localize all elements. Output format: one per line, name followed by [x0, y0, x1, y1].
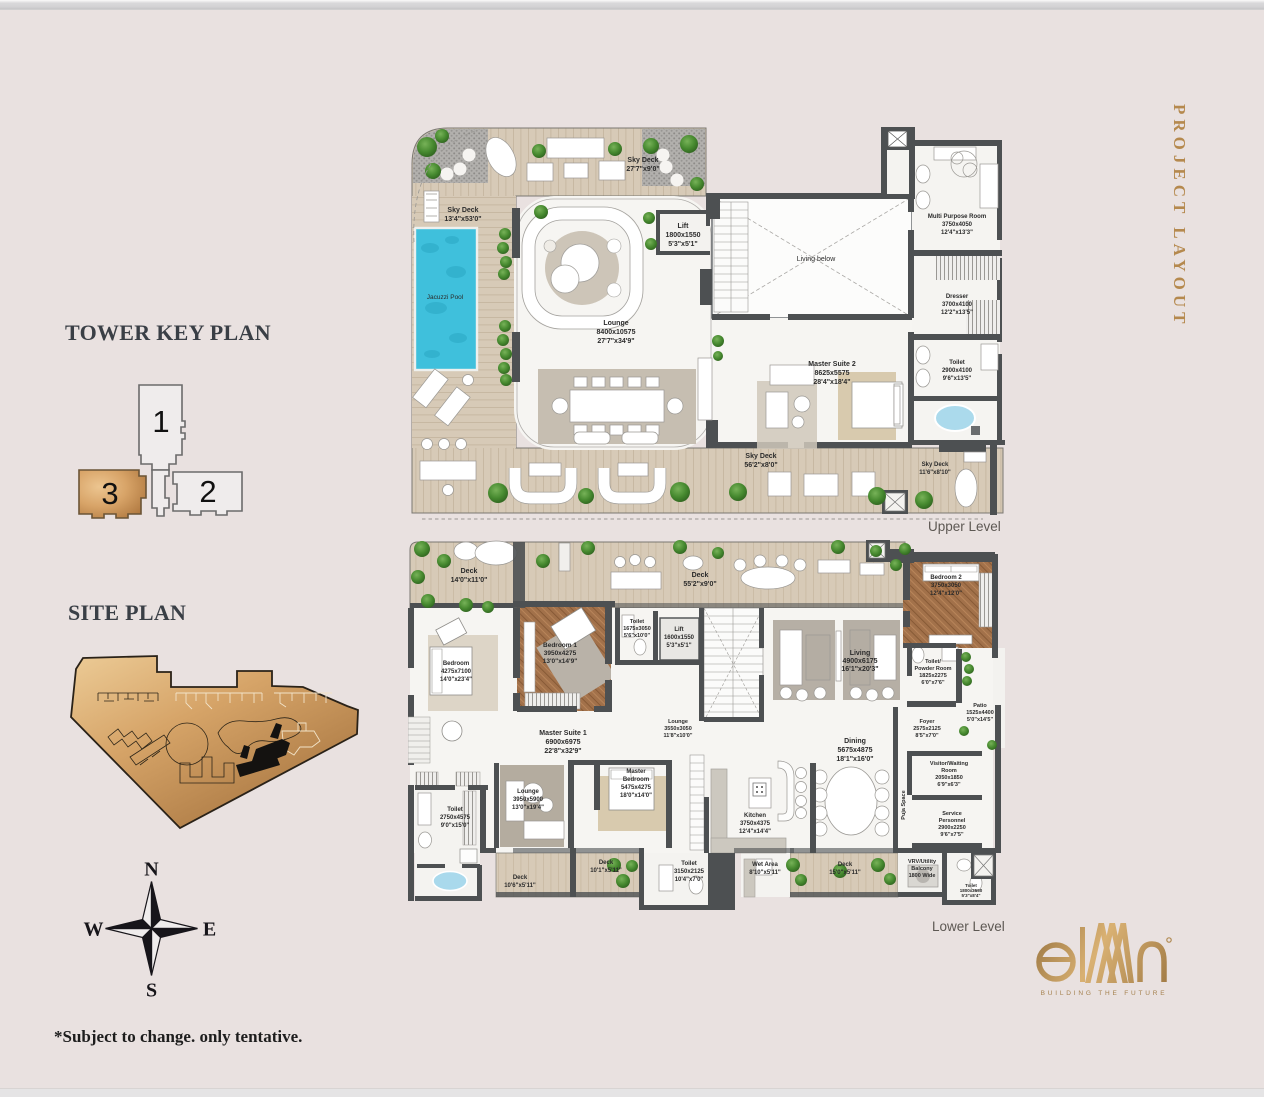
svg-text:2: 2	[199, 474, 216, 509]
svg-text:6'9"x6'3": 6'9"x6'3"	[937, 782, 961, 788]
svg-text:2900x2250: 2900x2250	[938, 825, 966, 831]
svg-text:12'4"x12'0": 12'4"x12'0"	[930, 591, 962, 597]
svg-text:Lounge: Lounge	[517, 789, 539, 795]
svg-text:3750x4375: 3750x4375	[740, 821, 771, 827]
svg-text:Balcony: Balcony	[911, 866, 933, 872]
svg-text:Toilet: Toilet	[949, 360, 965, 366]
svg-text:Patio: Patio	[973, 703, 987, 709]
svg-text:8'10"x5'11": 8'10"x5'11"	[749, 870, 781, 876]
svg-text:Kitchen: Kitchen	[744, 813, 766, 819]
svg-text:12'4"x13'3": 12'4"x13'3"	[941, 230, 973, 236]
svg-text:5'3"x8'4": 5'3"x8'4"	[962, 893, 981, 898]
svg-text:1800 Wide: 1800 Wide	[909, 873, 936, 879]
svg-text:5'3"x5'1": 5'3"x5'1"	[666, 643, 691, 649]
svg-text:Deck: Deck	[461, 568, 478, 575]
svg-text:27'7"x34'9": 27'7"x34'9"	[597, 338, 634, 345]
svg-text:2050x1850: 2050x1850	[935, 775, 963, 781]
svg-text:Sky Deck: Sky Deck	[922, 462, 949, 468]
svg-text:2750x4575: 2750x4575	[440, 815, 471, 821]
svg-text:12'4"x14'4": 12'4"x14'4"	[739, 829, 771, 835]
svg-text:13'0"x14'9": 13'0"x14'9"	[543, 658, 578, 665]
svg-text:3750x4050: 3750x4050	[942, 222, 973, 228]
svg-text:Wet Area: Wet Area	[752, 862, 778, 868]
svg-text:Lounge: Lounge	[603, 320, 628, 327]
svg-text:8400x10575: 8400x10575	[597, 329, 636, 336]
svg-text:Master Suite 1: Master Suite 1	[539, 730, 587, 737]
svg-text:11'8"x10'0": 11'8"x10'0"	[664, 733, 693, 739]
svg-text:15'0"x5'11": 15'0"x5'11"	[829, 870, 861, 876]
svg-text:5'0"x14'5": 5'0"x14'5"	[967, 717, 994, 723]
svg-text:10'4"x7'0": 10'4"x7'0"	[675, 877, 704, 883]
svg-text:6'0"x7'6": 6'0"x7'6"	[921, 680, 945, 686]
svg-text:Bedroom: Bedroom	[623, 777, 649, 783]
svg-text:13'0"x19'4": 13'0"x19'4"	[512, 805, 544, 811]
svg-text:8625x5575: 8625x5575	[814, 370, 849, 377]
svg-text:Foyer: Foyer	[920, 719, 936, 725]
svg-text:10'1"x5'11": 10'1"x5'11"	[590, 868, 622, 874]
svg-text:14'0"x11'0": 14'0"x11'0"	[451, 577, 488, 584]
svg-text:Room: Room	[941, 768, 957, 774]
svg-text:Bedroom 2: Bedroom 2	[930, 575, 962, 581]
svg-text:Deck: Deck	[599, 860, 614, 866]
svg-text:18'1"x16'0": 18'1"x16'0"	[836, 756, 873, 763]
svg-text:9'6"x7'5": 9'6"x7'5"	[940, 832, 964, 838]
svg-text:Sky Deck: Sky Deck	[745, 453, 776, 460]
svg-text:Service: Service	[942, 811, 962, 817]
svg-text:9'0"x15'0": 9'0"x15'0"	[441, 823, 470, 829]
svg-text:Living below: Living below	[797, 256, 836, 263]
svg-text:1675x3050: 1675x3050	[623, 626, 651, 632]
svg-text:Deck: Deck	[838, 862, 853, 868]
svg-text:Bedroom: Bedroom	[443, 661, 469, 667]
svg-text:BUILDING THE FUTURE: BUILDING THE FUTURE	[1041, 990, 1168, 997]
svg-text:3700x4100: 3700x4100	[942, 302, 973, 308]
svg-text:18'0"x14'0": 18'0"x14'0"	[620, 793, 652, 799]
svg-text:14'0"x23'4": 14'0"x23'4"	[440, 677, 472, 683]
svg-text:Sky Deck: Sky Deck	[627, 157, 658, 164]
svg-text:Powder Room: Powder Room	[915, 666, 952, 672]
svg-text:3950x5900: 3950x5900	[513, 797, 544, 803]
svg-text:3550x3050: 3550x3050	[664, 726, 692, 732]
svg-text:3: 3	[101, 476, 118, 511]
svg-text:3150x2125: 3150x2125	[674, 869, 705, 875]
svg-text:1: 1	[152, 404, 169, 439]
svg-text:16'1"x20'3": 16'1"x20'3"	[841, 666, 878, 673]
svg-text:13'4"x53'0": 13'4"x53'0"	[444, 216, 481, 223]
svg-text:10'6"x5'11": 10'6"x5'11"	[504, 883, 536, 889]
svg-text:22'8"x32'9": 22'8"x32'9"	[544, 748, 581, 755]
svg-text:Visitor/Waiting: Visitor/Waiting	[930, 761, 968, 767]
svg-text:Sky Deck: Sky Deck	[447, 207, 478, 214]
svg-text:Multi Purpose Room: Multi Purpose Room	[928, 214, 986, 220]
svg-text:W: W	[84, 919, 104, 941]
svg-text:Jacuzzi Pool: Jacuzzi Pool	[427, 294, 464, 301]
svg-text:3950x4275: 3950x4275	[544, 650, 577, 657]
svg-text:11'6"x8'10": 11'6"x8'10"	[919, 470, 951, 476]
svg-text:Dining: Dining	[844, 738, 866, 745]
svg-text:Bedroom 1: Bedroom 1	[543, 642, 577, 649]
svg-text:Puja Space: Puja Space	[901, 790, 907, 819]
svg-text:55'2"x9'0": 55'2"x9'0"	[683, 581, 716, 588]
svg-text:S: S	[146, 980, 157, 1001]
svg-text:2900x4100: 2900x4100	[942, 368, 973, 374]
svg-text:5'6"x10'0": 5'6"x10'0"	[624, 633, 651, 639]
svg-text:28'4"x18'4": 28'4"x18'4"	[813, 379, 850, 386]
svg-text:27'7"x9'0": 27'7"x9'0"	[626, 166, 659, 173]
svg-text:VRV/Utility: VRV/Utility	[908, 859, 937, 865]
svg-text:Lift: Lift	[674, 627, 683, 633]
svg-text:8'5"x7'0": 8'5"x7'0"	[915, 733, 939, 739]
svg-text:12'2"x13'5": 12'2"x13'5"	[941, 310, 973, 316]
svg-text:Toilet: Toilet	[447, 807, 463, 813]
svg-text:Toilet: Toilet	[681, 861, 697, 867]
svg-text:Dresser: Dresser	[946, 294, 969, 300]
svg-text:Toilet/: Toilet/	[925, 659, 941, 665]
svg-text:5675x4875: 5675x4875	[837, 747, 872, 754]
svg-text:6900x6975: 6900x6975	[545, 739, 580, 746]
svg-text:56'2"x8'0": 56'2"x8'0"	[744, 462, 777, 469]
svg-text:Deck: Deck	[692, 572, 709, 579]
svg-text:Deck: Deck	[513, 875, 528, 881]
svg-text:Master: Master	[626, 769, 646, 775]
svg-text:1525x4400: 1525x4400	[966, 710, 994, 716]
svg-text:1600x1550: 1600x1550	[664, 635, 695, 641]
svg-text:1825x2275: 1825x2275	[919, 673, 947, 679]
svg-text:Personnel: Personnel	[939, 818, 966, 824]
svg-text:3750x3050: 3750x3050	[931, 583, 962, 589]
svg-text:9'6"x13'5": 9'6"x13'5"	[943, 376, 972, 382]
svg-text:Living: Living	[850, 650, 871, 657]
svg-text:N: N	[144, 860, 159, 881]
svg-text:Toilet: Toilet	[630, 619, 644, 625]
svg-text:Lounge: Lounge	[668, 719, 688, 725]
svg-text:4900x6175: 4900x6175	[842, 658, 877, 665]
svg-text:5'3"x5'1": 5'3"x5'1"	[668, 241, 697, 248]
svg-text:Master Suite 2: Master Suite 2	[808, 361, 856, 368]
svg-text:Lift: Lift	[678, 223, 690, 230]
svg-text:4275x7100: 4275x7100	[441, 669, 472, 675]
svg-text:5475x4275: 5475x4275	[621, 785, 652, 791]
svg-text:E: E	[203, 919, 216, 941]
svg-text:1800x1550: 1800x1550	[665, 232, 700, 239]
svg-text:2575x2125: 2575x2125	[913, 726, 941, 732]
